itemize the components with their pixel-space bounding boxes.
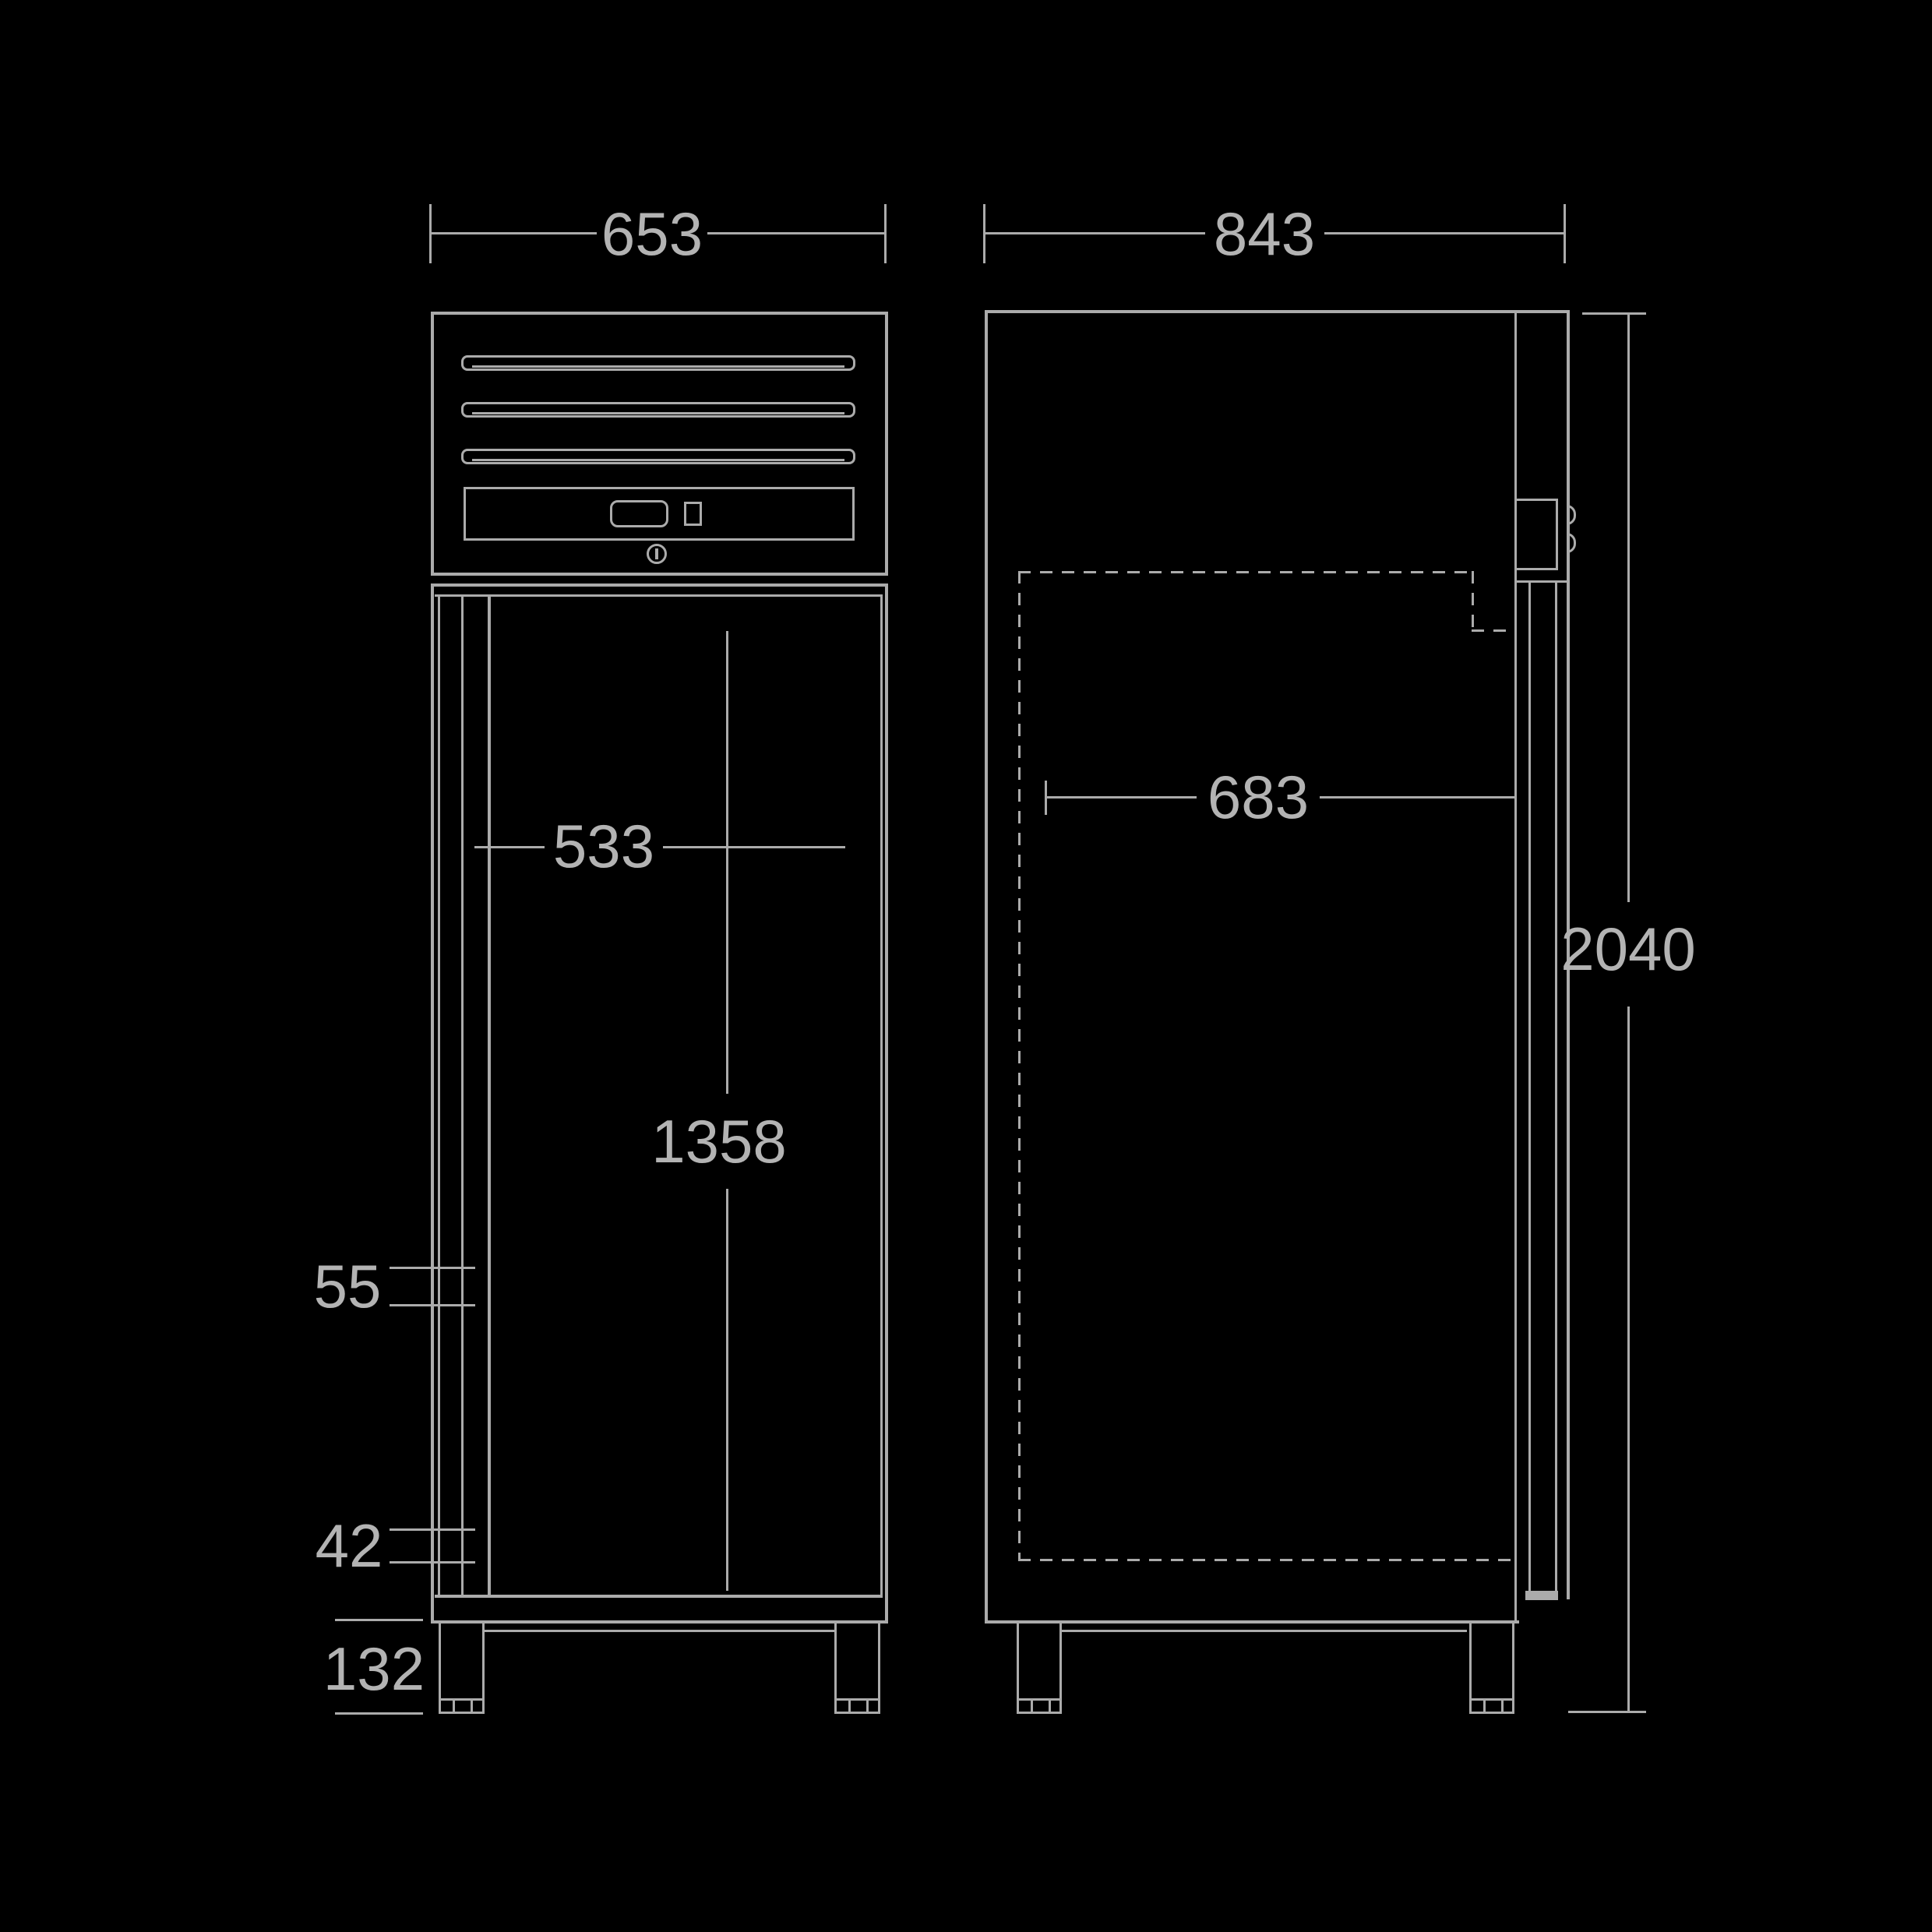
dim-533-label: 533 (553, 816, 654, 876)
front-door-left-edge (488, 594, 491, 1595)
interior-dashed-top (1018, 571, 1474, 573)
side-bottom-edge (985, 1620, 1519, 1624)
side-left-foot-edge (1059, 1620, 1062, 1700)
dim-653-line (707, 232, 886, 234)
dim-2040-extension (1568, 1711, 1646, 1713)
front-right-foot-edge (878, 1620, 880, 1700)
side-right-foot-base (1469, 1698, 1514, 1714)
dim-55-label: 55 (314, 1256, 382, 1317)
interior-dashed-notch-horizontal (1472, 629, 1514, 632)
front-left-foot-edge (482, 1620, 485, 1700)
front-door-bottom-line (435, 1595, 883, 1598)
dim-1358-line (726, 1189, 728, 1591)
front-cabinet-outline (431, 583, 888, 1624)
dim-132-tick (335, 1712, 423, 1715)
side-left-foot-edge (1017, 1620, 1019, 1700)
vent-louver-slat-inner-line (472, 412, 844, 414)
dim-55-tick (390, 1304, 475, 1306)
dim-2040-label: 2040 (1560, 918, 1696, 979)
dim-1358-label: 1358 (651, 1111, 787, 1172)
door-lock-keyhole (655, 548, 658, 559)
front-left-foot-base-line (453, 1698, 455, 1714)
front-base-recess-line (485, 1630, 834, 1632)
dim-132-label: 132 (323, 1638, 425, 1699)
side-left-foot-base (1017, 1698, 1062, 1714)
dim-1358-line (726, 631, 728, 1094)
dim-843-line (1324, 232, 1564, 234)
dim-683-label: 683 (1207, 767, 1309, 827)
dim-55-tick (390, 1267, 475, 1269)
side-right-foot-edge (1512, 1620, 1514, 1700)
side-hinge-knuckle (1567, 533, 1576, 553)
side-left-foot-base-line (1049, 1698, 1051, 1714)
side-door-bottom-cap (1525, 1591, 1558, 1600)
dim-843-tick (1564, 204, 1566, 263)
front-right-foot-edge (834, 1620, 837, 1700)
vent-louver-slat (461, 402, 855, 418)
front-left-foot-base (439, 1698, 485, 1714)
side-right-foot-base-line (1483, 1698, 1486, 1714)
front-right-foot-base (834, 1698, 880, 1714)
front-left-foot-base-line (471, 1698, 473, 1714)
dim-683-line (1046, 796, 1197, 799)
side-door-inner-line (1528, 580, 1531, 1599)
side-top-edge (985, 310, 1569, 313)
dim-42-tick (390, 1528, 475, 1531)
dim-843-label: 843 (1214, 203, 1315, 264)
control-panel-display (610, 500, 668, 527)
dim-42-tick (390, 1561, 475, 1564)
front-right-foot-base-line (848, 1698, 851, 1714)
side-back-edge (985, 310, 988, 1624)
side-top-hinge-block (1514, 499, 1558, 570)
front-door-right-edge (880, 594, 883, 1595)
front-hinge-strip-line (438, 594, 440, 1595)
interior-dashed-left (1018, 571, 1021, 1559)
front-hinge-strip-line (461, 594, 464, 1595)
dim-653-line (432, 232, 597, 234)
dim-2040-line (1627, 314, 1630, 902)
dim-843-line (985, 232, 1205, 234)
side-base-recess-line (1062, 1630, 1467, 1632)
dim-2040-extension (1582, 312, 1646, 315)
side-hinge-bottom-line (1514, 580, 1569, 583)
dim-42-label: 42 (316, 1515, 383, 1576)
dim-653-label: 653 (601, 203, 703, 264)
dim-683-line (1320, 796, 1514, 799)
control-panel-button (684, 502, 702, 526)
side-right-foot-base-line (1501, 1698, 1504, 1714)
dim-533-line (474, 846, 545, 848)
dim-533-line (663, 846, 845, 848)
vent-louver-slat-inner-line (472, 365, 844, 368)
dimension-drawing-canvas: 653 533 1358 55 42 132 (0, 0, 1932, 1932)
vent-louver-slat-inner-line (472, 459, 844, 461)
side-left-foot-base-line (1031, 1698, 1033, 1714)
vent-louver-slat (461, 355, 855, 371)
front-right-foot-base-line (866, 1698, 869, 1714)
side-door-inner-line (1555, 580, 1557, 1599)
side-hinge-knuckle (1567, 505, 1576, 525)
front-door-top-line (435, 594, 883, 597)
dim-2040-line (1627, 1007, 1630, 1711)
interior-dashed-notch-vertical (1472, 571, 1474, 629)
interior-dashed-bottom (1018, 1559, 1514, 1561)
front-left-foot-edge (439, 1620, 441, 1700)
vent-louver-slat (461, 449, 855, 464)
side-right-foot-edge (1469, 1620, 1472, 1700)
dim-132-tick (335, 1619, 423, 1621)
